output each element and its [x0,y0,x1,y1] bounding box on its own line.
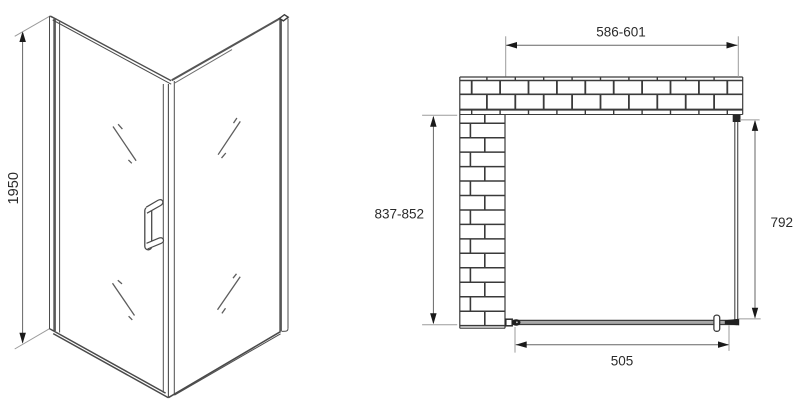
svg-text:1950: 1950 [6,172,22,204]
svg-text:837-852: 837-852 [374,207,424,222]
svg-text:792: 792 [771,215,794,230]
svg-text:586-601: 586-601 [596,25,646,40]
svg-text:505: 505 [611,354,634,369]
